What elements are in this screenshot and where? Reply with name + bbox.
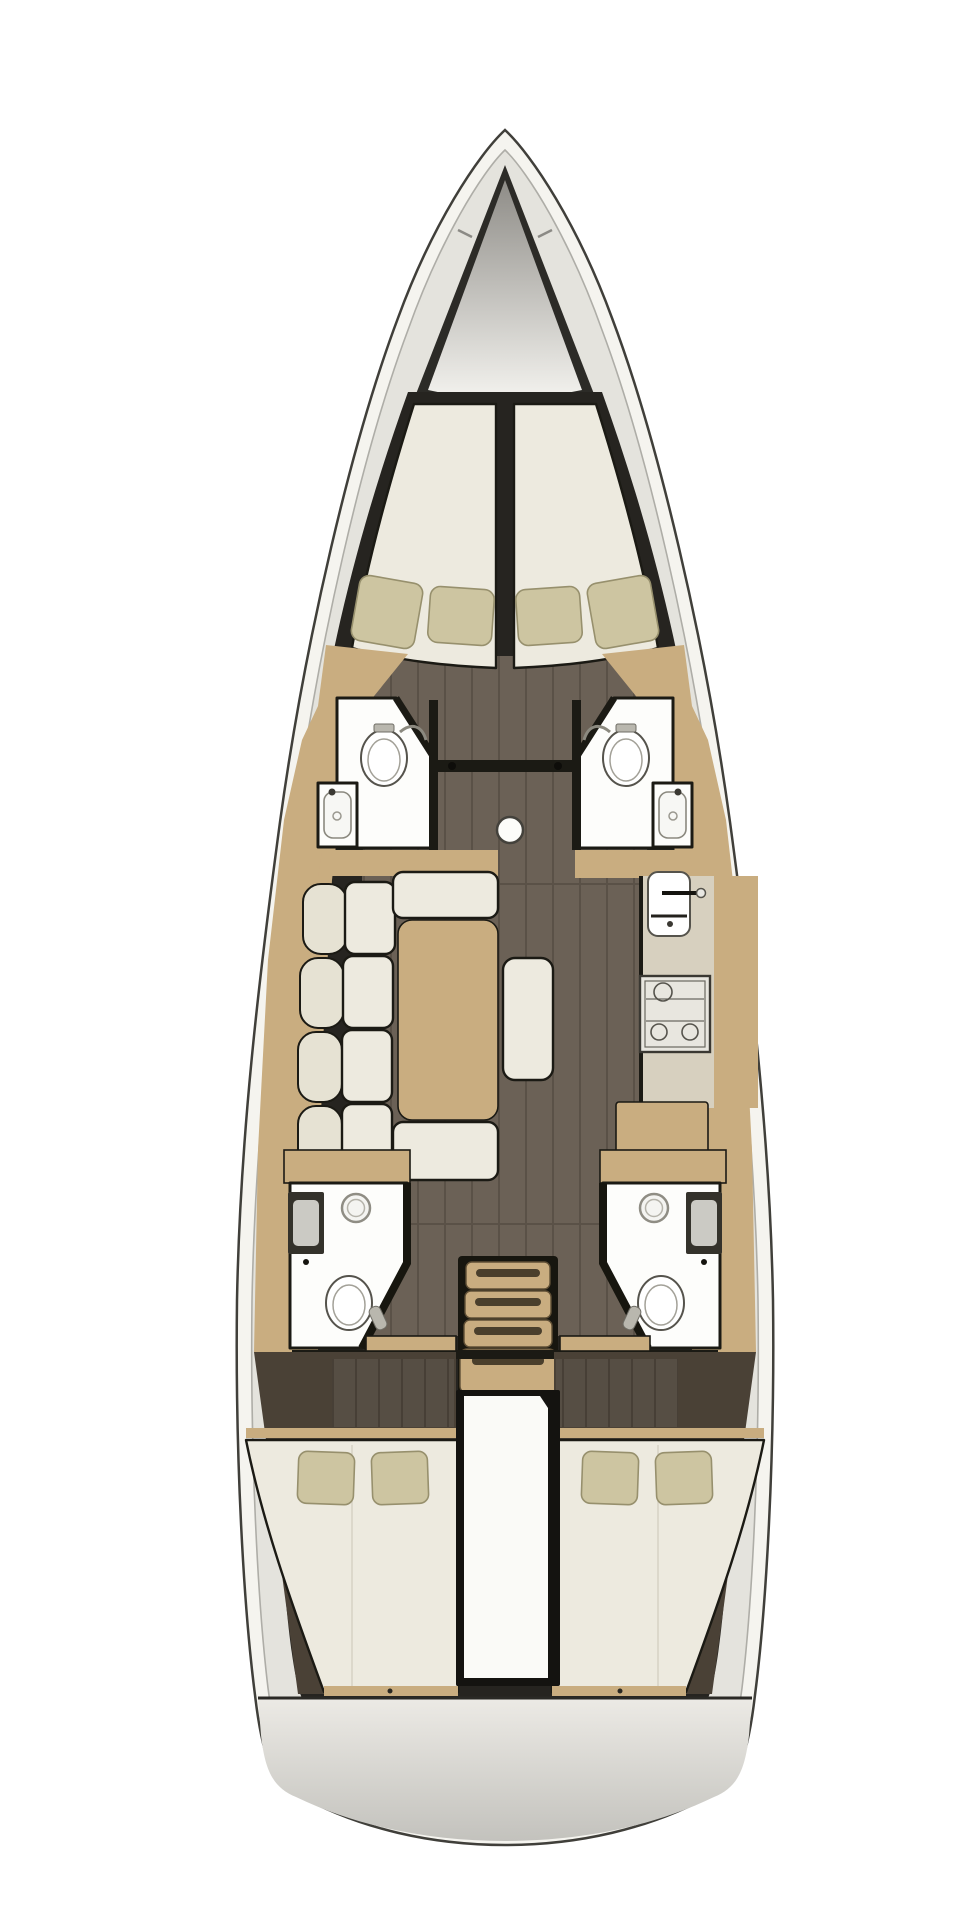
sofa-backrest-1 bbox=[303, 884, 347, 954]
v-berth-pillow-3 bbox=[515, 586, 583, 646]
side-ledge-port bbox=[366, 1336, 456, 1351]
aft-cabin-floor-port-planks bbox=[332, 1359, 454, 1427]
sill-fitting-starboard bbox=[618, 1689, 623, 1694]
engine-compartment bbox=[456, 1390, 560, 1686]
crossbar-latch-port bbox=[448, 762, 456, 770]
sofa-seat-3 bbox=[342, 1030, 392, 1102]
galley-stove bbox=[640, 976, 710, 1052]
aft-head-starboard-shelf bbox=[600, 1150, 726, 1183]
washbasin-aft-starboard bbox=[691, 1200, 717, 1246]
side-ledge-starboard bbox=[560, 1336, 650, 1351]
stair-tread-1-slot bbox=[476, 1269, 540, 1277]
v-berth-pillow-1 bbox=[350, 574, 424, 650]
washbasin-aft-port bbox=[293, 1200, 319, 1246]
crossbar-latch-starboard bbox=[554, 762, 562, 770]
aft-cabin-floor-starboard-planks bbox=[556, 1359, 678, 1427]
faucet-forward-port bbox=[329, 789, 336, 796]
aft-pillow-starboard-2 bbox=[655, 1451, 713, 1505]
washbasin-aft-starboard-drain bbox=[701, 1259, 707, 1265]
washbasin-forward-port bbox=[324, 792, 351, 838]
sofa-seat-1 bbox=[345, 882, 395, 954]
saloon-table bbox=[398, 920, 498, 1120]
headboard-port bbox=[246, 1428, 458, 1438]
aft-pillow-port-1 bbox=[297, 1451, 355, 1505]
toilet-forward-port-hinge bbox=[374, 724, 394, 732]
stair-tread-2-slot bbox=[475, 1298, 541, 1306]
faucet-forward-starboard bbox=[675, 789, 682, 796]
sofa-backrest-3 bbox=[298, 1032, 342, 1102]
stair-tread-3-slot bbox=[474, 1327, 542, 1335]
v-berth-pillow-2 bbox=[427, 586, 495, 646]
boat-floorplan bbox=[0, 0, 959, 1919]
sill-fitting-port bbox=[388, 1689, 393, 1694]
sofa-backrest-2 bbox=[300, 958, 344, 1028]
toilet-forward-starboard-hinge bbox=[616, 724, 636, 732]
washbasin-forward-starboard bbox=[659, 792, 686, 838]
transom-platform bbox=[258, 1698, 752, 1841]
door-frame-forward-port bbox=[429, 700, 438, 850]
sofa-bench-forward bbox=[393, 872, 498, 918]
ottoman-bench bbox=[503, 958, 553, 1080]
aft-pillow-port-2 bbox=[371, 1451, 429, 1505]
v-berth-pillow-4 bbox=[586, 574, 660, 650]
aft-pillow-starboard-1 bbox=[581, 1451, 639, 1505]
shower-drain-aft-port bbox=[342, 1194, 370, 1222]
mast-post bbox=[497, 817, 523, 843]
washbasin-aft-port-drain bbox=[303, 1259, 309, 1265]
sofa-seat-2 bbox=[343, 956, 393, 1028]
engine-box bbox=[464, 1396, 548, 1678]
galley-wood-top bbox=[714, 876, 758, 1108]
door-frame-forward-starboard bbox=[572, 700, 581, 850]
boat-floorplan-canvas bbox=[0, 0, 959, 1919]
headboard-starboard bbox=[552, 1428, 764, 1438]
transom bbox=[258, 1698, 752, 1841]
aft-head-port-shelf bbox=[284, 1150, 410, 1183]
galley-faucet-knob bbox=[697, 889, 706, 898]
galley-sink-drain bbox=[667, 921, 673, 927]
shower-drain-aft-starboard bbox=[640, 1194, 668, 1222]
